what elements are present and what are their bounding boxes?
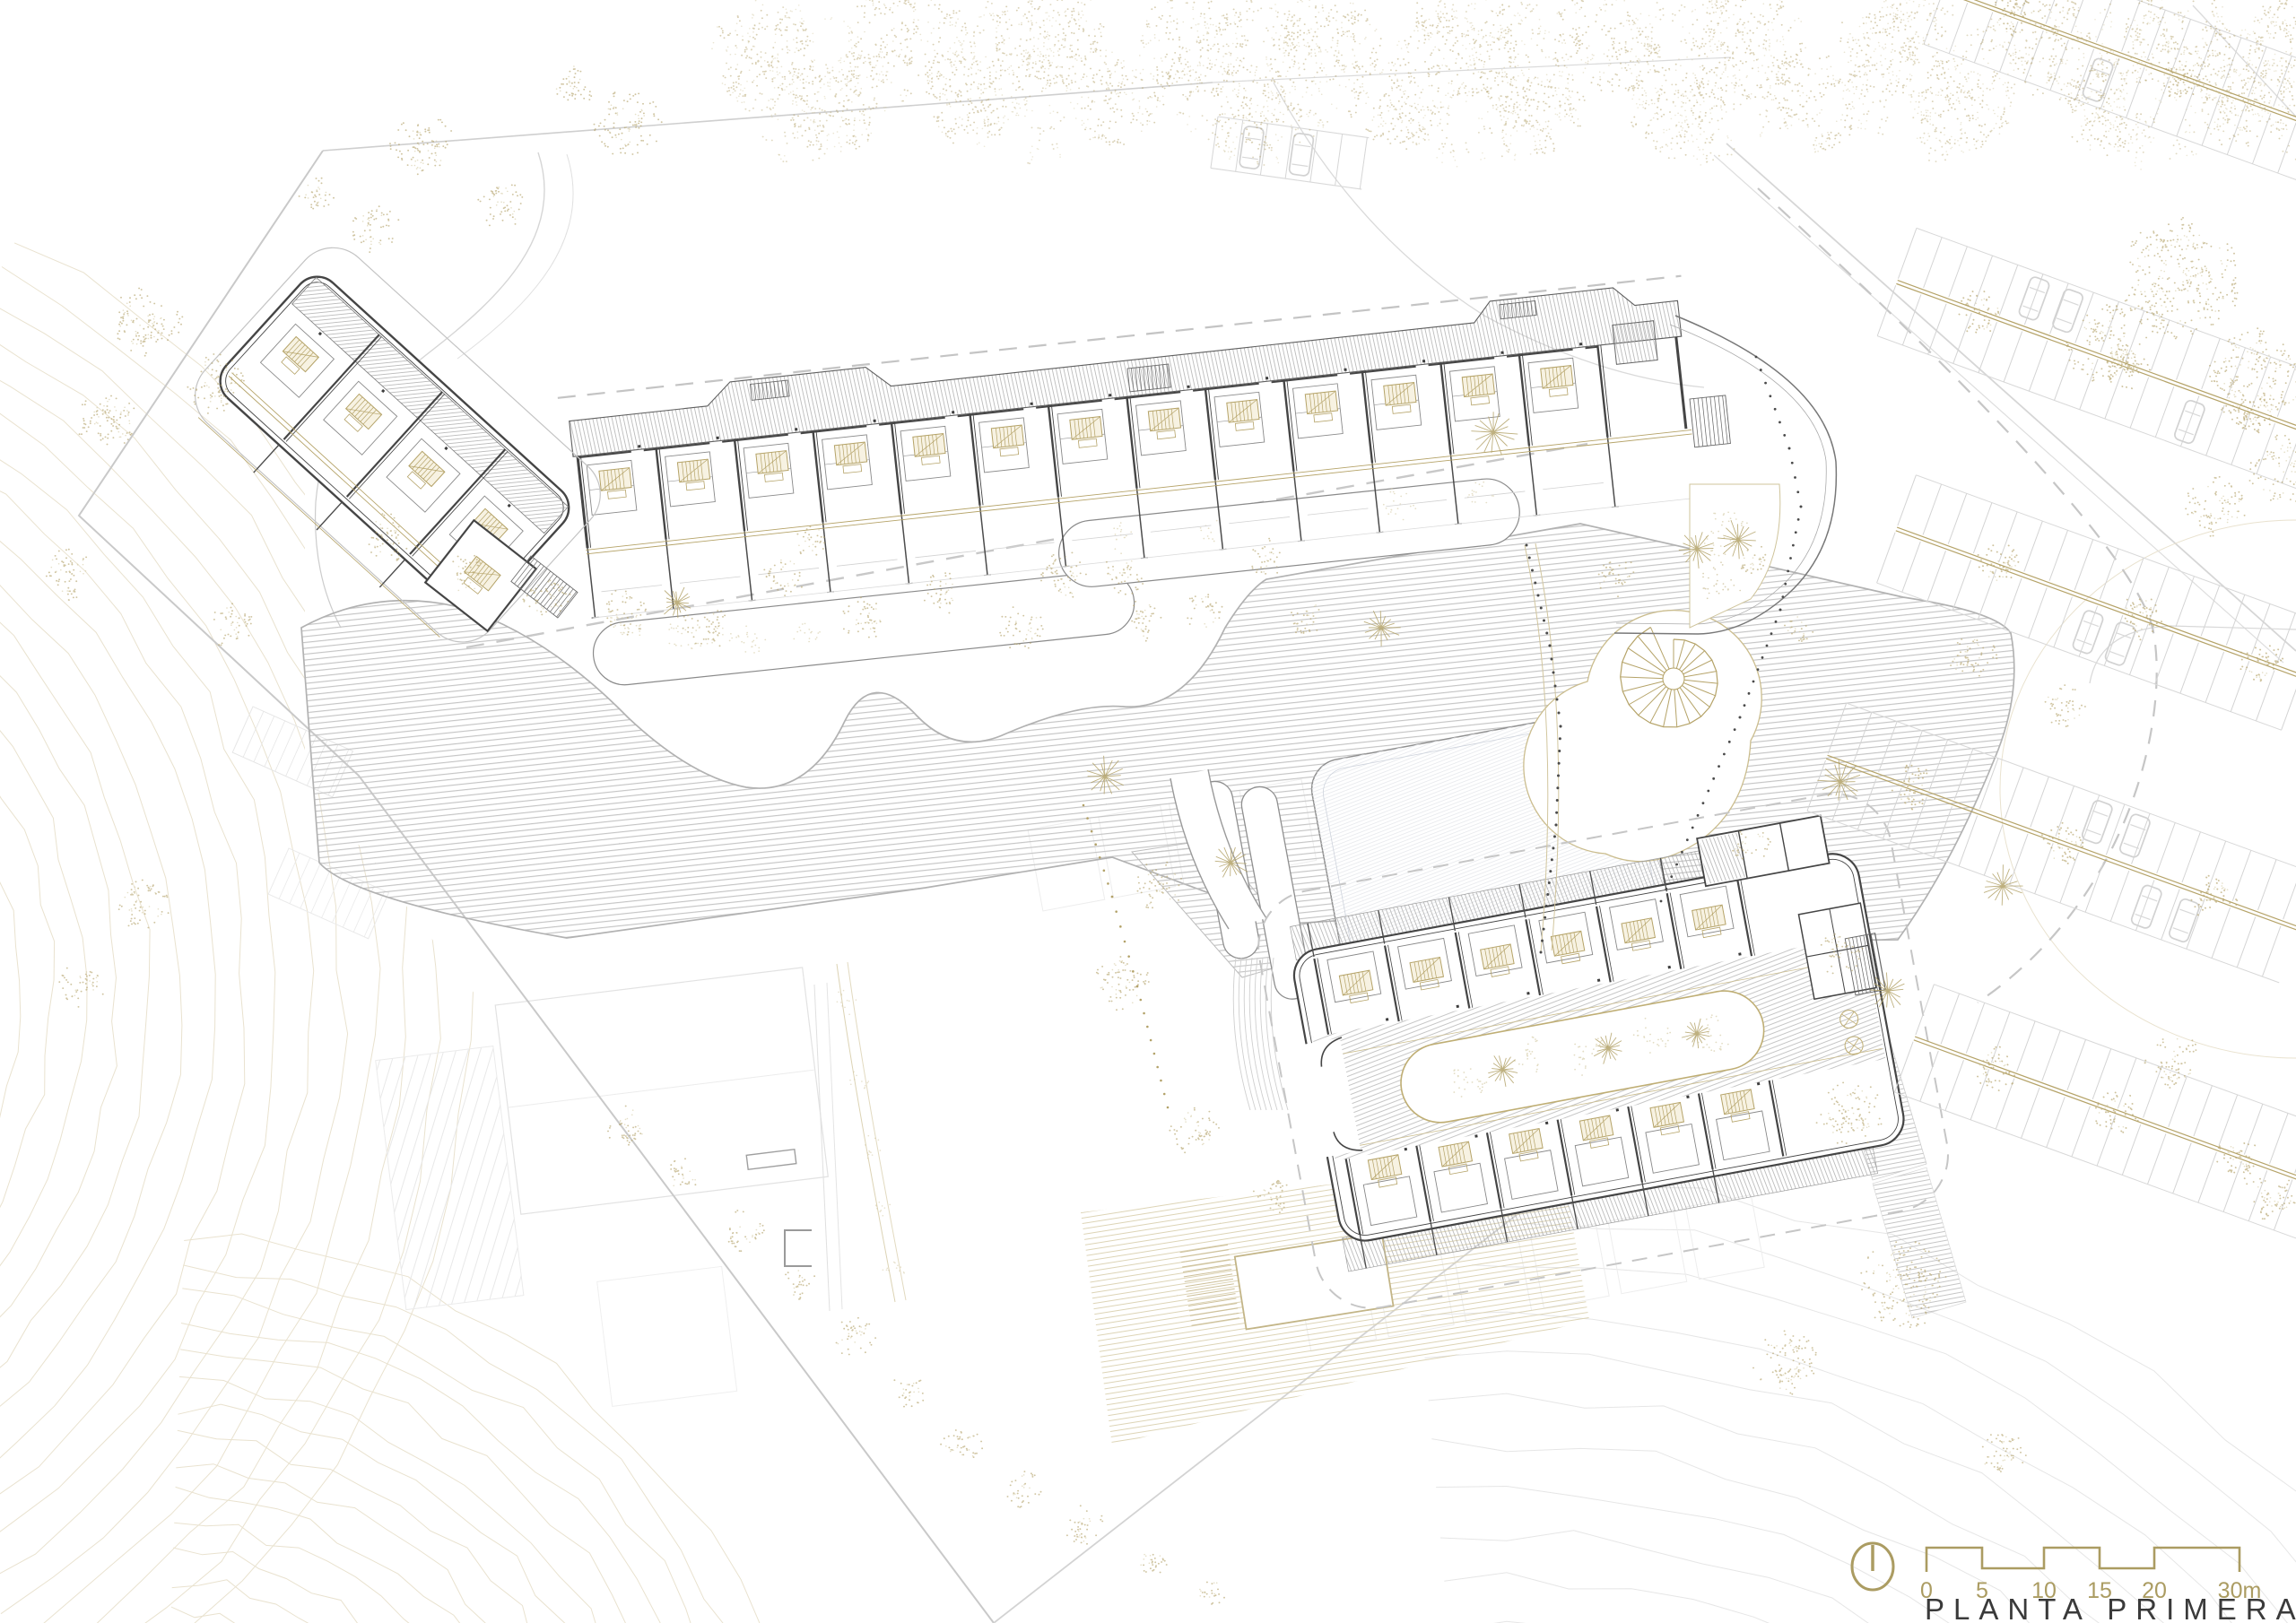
north-arrow-icon (1852, 1543, 1893, 1590)
site-plan-canvas: 0 5 10 15 20 30m PLANTA PRIMERA (0, 0, 2296, 1623)
scale-bar (1926, 1548, 2239, 1572)
parking-row (1877, 228, 2296, 489)
parking-row (1211, 117, 1369, 189)
plan-title: PLANTA PRIMERA (1925, 1593, 2296, 1623)
title-block: 0 5 10 15 20 30m PLANTA PRIMERA (1852, 1543, 2296, 1623)
parking-row (1924, 0, 2296, 216)
west-wing-building (176, 232, 615, 662)
parking-row (1895, 985, 2296, 1239)
floor-plan-sheet: 0 5 10 15 20 30m PLANTA PRIMERA (0, 0, 2296, 1623)
